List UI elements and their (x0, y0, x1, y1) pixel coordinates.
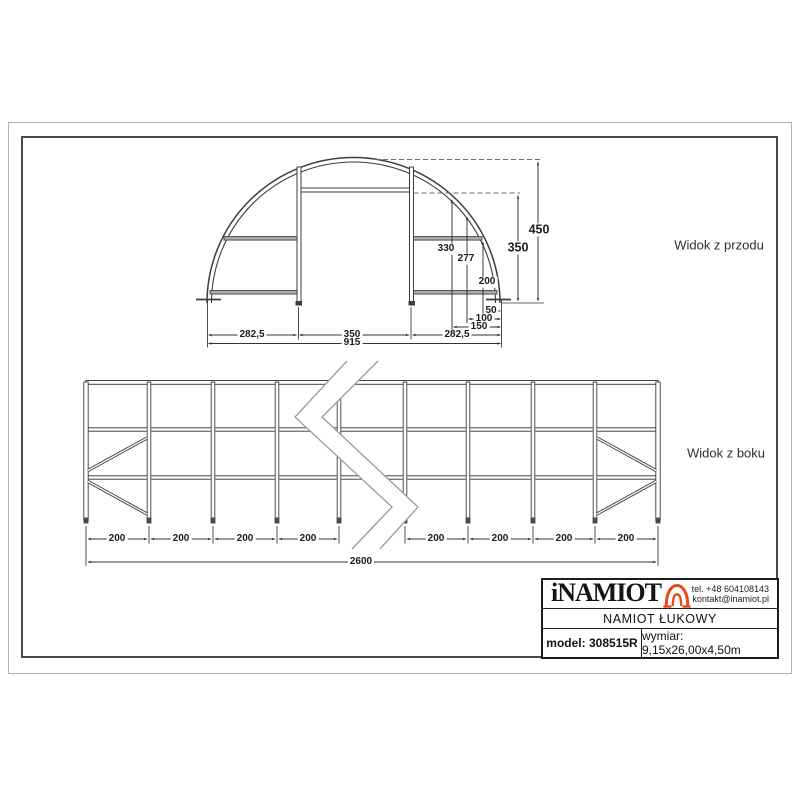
front-dim-total: 915 (342, 338, 363, 349)
front-dim-330: 330 (436, 244, 457, 255)
side-bay-dim: 200 (298, 534, 319, 545)
side-bay-dim: 200 (554, 534, 575, 545)
door-frame (297, 167, 414, 305)
product-dimensions: wymiar: 9,15x26,00x4,50m (642, 629, 777, 657)
front-dim-200: 200 (477, 277, 498, 288)
door-post-feet (296, 301, 416, 306)
product-name: NAMIOT ŁUKOWY (543, 608, 777, 628)
side-view-label: Widok z boku (687, 446, 765, 461)
side-bay-dim: 200 (616, 534, 637, 545)
phone-number: tel. +48 604108143 (692, 584, 769, 594)
front-dim-450: 450 (527, 223, 552, 236)
side-bay-dim: 200 (171, 534, 192, 545)
side-bay-dim: 200 (426, 534, 447, 545)
side-bay-dim: 200 (235, 534, 256, 545)
side-dim-total: 2600 (348, 557, 374, 568)
side-bay-dim: 200 (490, 534, 511, 545)
title-block: iNAMIOT tel. +48 604108143 kontakt@inami… (541, 578, 779, 659)
side-posts (84, 382, 660, 521)
front-dim-left: 282,5 (237, 330, 266, 341)
front-dim-350-height: 350 (506, 241, 531, 254)
side-bay-dim: 200 (107, 534, 128, 545)
contact-info: tel. +48 604108143 kontakt@inamiot.pl (692, 584, 769, 605)
email-address: kontakt@inamiot.pl (692, 594, 769, 604)
model-number: model: 308515R (543, 629, 642, 657)
tent-arch-icon (663, 582, 691, 608)
side-post-feet (84, 518, 661, 524)
break-symbol (295, 361, 418, 549)
front-dim-right: 282,5 (442, 330, 471, 341)
brand-logo-text: iNAMIOT (551, 580, 661, 606)
front-dim-277: 277 (456, 254, 477, 265)
front-view-label: Widok z przodu (674, 238, 764, 253)
arch-inner-line (212, 162, 496, 303)
title-block-spec-row: model: 308515R wymiar: 9,15x26,00x4,50m (543, 628, 777, 657)
drawing-sheet: { "front_view": { "label": "Widok z przo… (0, 0, 800, 800)
title-block-brand-row: iNAMIOT tel. +48 604108143 kontakt@inami… (543, 580, 777, 608)
front-dim-150: 150 (469, 322, 490, 333)
arch-outer-line (207, 158, 500, 303)
